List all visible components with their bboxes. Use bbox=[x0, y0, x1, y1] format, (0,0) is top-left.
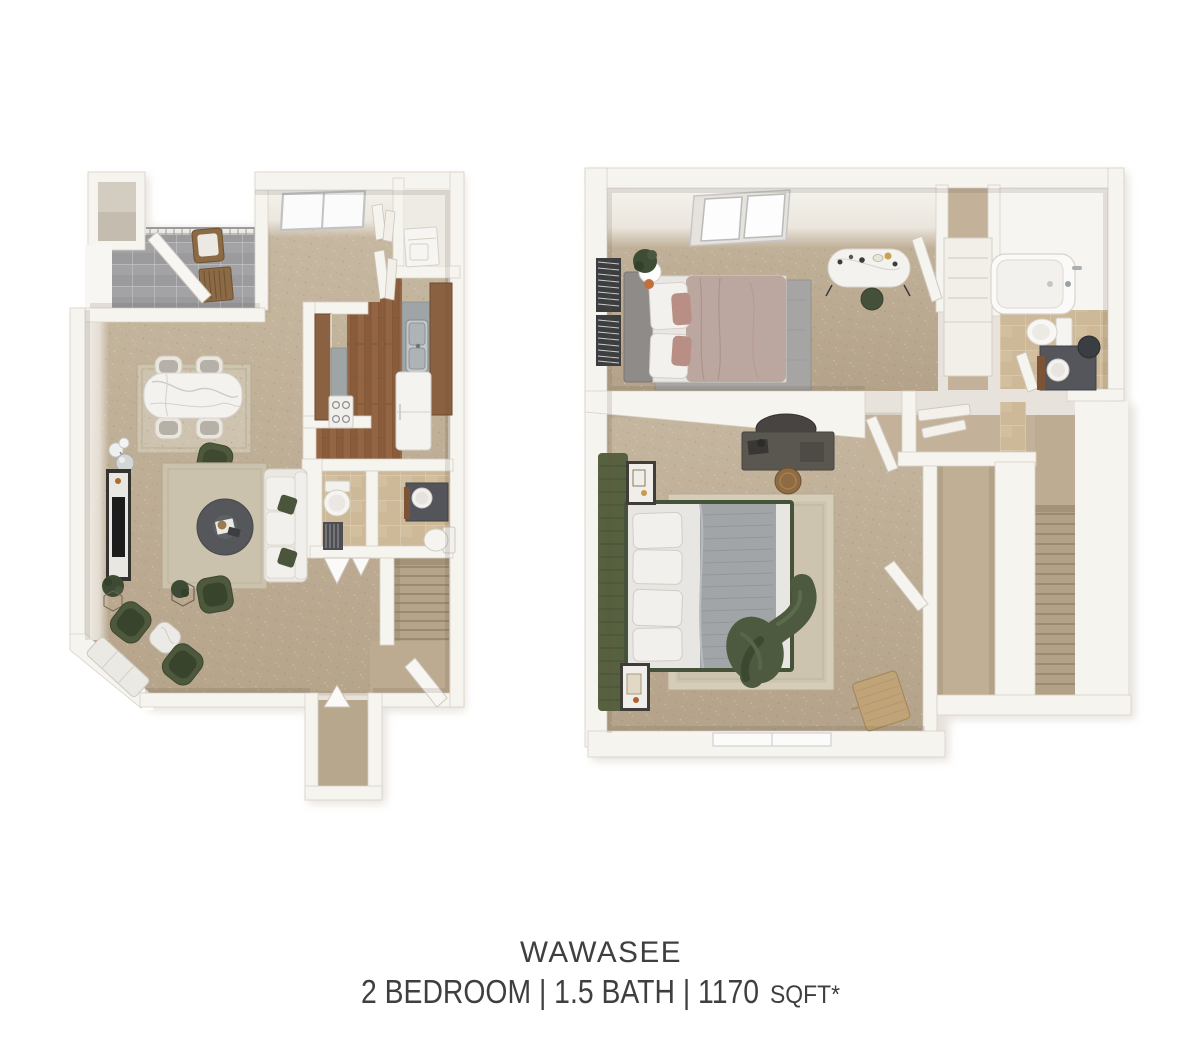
svg-text:SQFT*: SQFT* bbox=[770, 981, 840, 1009]
svg-text:WAWASEE: WAWASEE bbox=[520, 936, 682, 969]
svg-text:2 BEDROOM | 1.5 BATH | 1170: 2 BEDROOM | 1.5 BATH | 1170 bbox=[361, 973, 759, 1010]
